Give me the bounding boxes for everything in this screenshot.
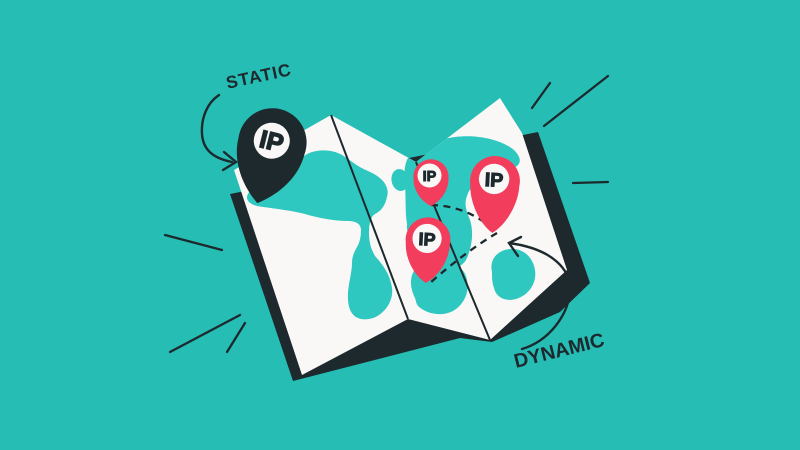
svg-text:IP: IP: [423, 169, 437, 185]
svg-text:IP: IP: [484, 169, 504, 192]
svg-text:IP: IP: [418, 229, 436, 250]
